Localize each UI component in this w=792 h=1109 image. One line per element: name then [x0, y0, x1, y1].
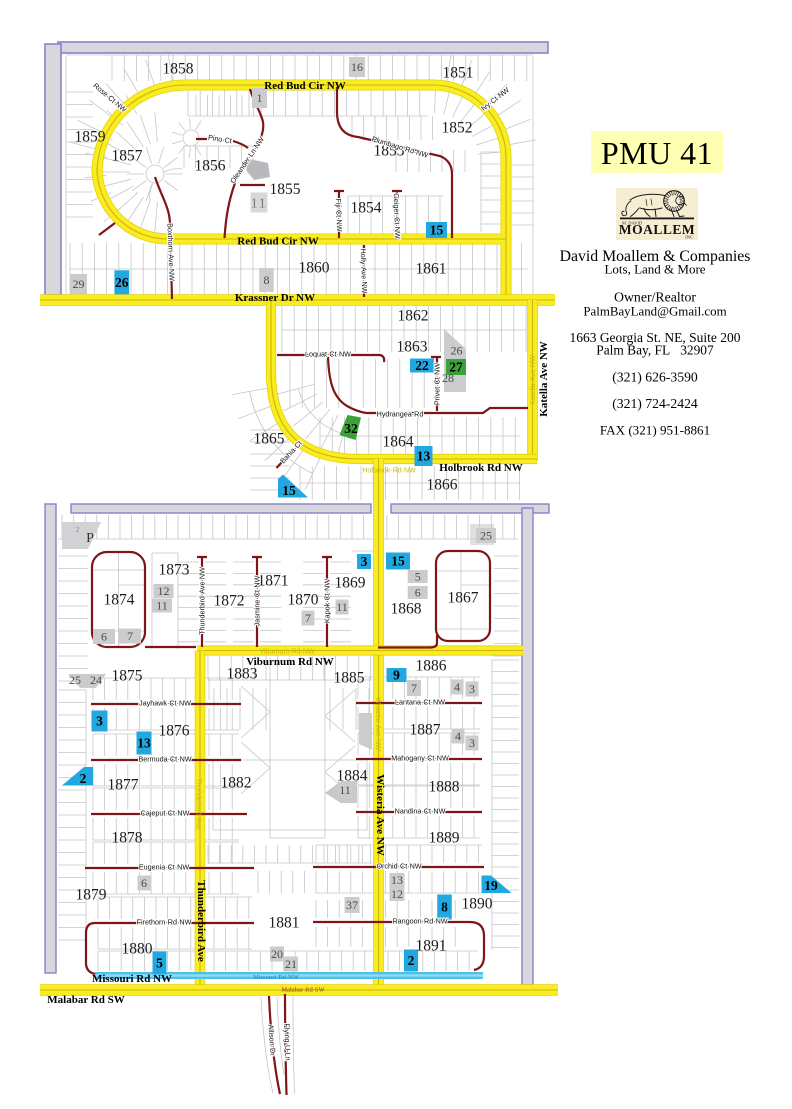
svg-text:PMU 41: PMU 41: [601, 135, 713, 171]
svg-text:Malabar Rd SW: Malabar Rd SW: [47, 994, 124, 1006]
svg-text:Red Bud Cir NW: Red Bud Cir NW: [264, 80, 345, 92]
svg-text:2: 2: [80, 771, 87, 786]
svg-text:Geiger·Ct·NW: Geiger·Ct·NW: [392, 193, 403, 239]
svg-text:1884: 1884: [337, 768, 368, 785]
svg-text:1879: 1879: [76, 887, 107, 904]
svg-text:2: 2: [76, 526, 80, 534]
svg-text:3: 3: [469, 736, 475, 750]
svg-text:5: 5: [415, 570, 421, 584]
svg-text:Nandina·Ct·NW: Nandina·Ct·NW: [395, 807, 446, 816]
svg-text:Kapok·Ct·NW: Kapok·Ct·NW: [323, 579, 332, 624]
svg-text:Holly·Ave·NW: Holly·Ave·NW: [359, 248, 370, 293]
svg-text:Jasmine·Ct·NW: Jasmine·Ct·NW: [253, 575, 262, 626]
svg-text:1872: 1872: [214, 593, 245, 610]
svg-text:16: 16: [351, 60, 363, 74]
svg-text:1882: 1882: [221, 775, 252, 792]
svg-text:9: 9: [393, 668, 400, 683]
svg-text:Holbrook·Rd·NW: Holbrook·Rd·NW: [362, 468, 416, 475]
svg-text:1864: 1864: [383, 434, 414, 451]
svg-text:Holbrook Rd NW: Holbrook Rd NW: [439, 462, 523, 474]
svg-text:1855: 1855: [270, 181, 301, 198]
svg-text:Jayhawk·Ct·NW: Jayhawk·Ct·NW: [139, 699, 191, 708]
svg-text:1: 1: [257, 91, 263, 105]
svg-text:15: 15: [430, 223, 444, 238]
svg-text:8: 8: [441, 900, 448, 915]
svg-text:Owner/Realtor: Owner/Realtor: [614, 290, 696, 305]
svg-text:1863: 1863: [397, 339, 428, 356]
svg-text:3: 3: [361, 554, 368, 569]
svg-text:1857: 1857: [112, 148, 143, 165]
svg-text:Bermuda·Ct·NW: Bermuda·Ct·NW: [138, 755, 191, 764]
svg-text:1887: 1887: [410, 722, 441, 739]
svg-text:Wisteria·Ave·NW: Wisteria·Ave·NW: [374, 697, 381, 751]
svg-text:28: 28: [442, 371, 454, 385]
svg-text:1851: 1851: [443, 65, 474, 82]
svg-text:1865: 1865: [254, 431, 285, 448]
svg-text:1885: 1885: [334, 670, 365, 687]
svg-text:20: 20: [271, 947, 283, 961]
svg-text:1889: 1889: [429, 830, 460, 847]
svg-text:(321) 626-3590: (321) 626-3590: [612, 370, 698, 386]
svg-text:1861: 1861: [416, 261, 447, 278]
svg-text:6: 6: [415, 586, 421, 600]
svg-text:1870: 1870: [288, 592, 319, 609]
svg-text:Viburnum Rd NW: Viburnum Rd NW: [246, 656, 334, 668]
svg-text:1866: 1866: [427, 477, 458, 494]
svg-text:Thunderbird·Ave: Thunderbird·Ave: [195, 778, 202, 830]
svg-text:Katella Ave NW: Katella Ave NW: [538, 341, 550, 417]
svg-text:1859: 1859: [75, 129, 106, 146]
svg-text:1867: 1867: [448, 590, 479, 607]
svg-text:Wisteria Ave NW: Wisteria Ave NW: [374, 774, 386, 855]
svg-text:1869: 1869: [335, 575, 366, 592]
svg-text:15: 15: [282, 483, 296, 498]
svg-text:Fiji·Ct·NW: Fiji·Ct·NW: [334, 198, 344, 232]
svg-text:Cajeput·Ct·NW: Cajeput·Ct·NW: [141, 809, 190, 818]
svg-text:8: 8: [264, 273, 270, 287]
svg-text:Thunderbird Ave: Thunderbird Ave: [195, 880, 207, 962]
svg-text:25: 25: [69, 673, 81, 687]
svg-text:1876: 1876: [159, 723, 190, 740]
svg-text:5: 5: [156, 956, 163, 971]
svg-text:Palm Bay, FL 32907: Palm Bay, FL 32907: [596, 343, 714, 358]
svg-text:Red Bud Cir NW: Red Bud Cir NW: [237, 236, 318, 248]
svg-text:1856: 1856: [195, 158, 226, 175]
svg-text:P: P: [86, 531, 94, 546]
svg-text:Viburnum·Rd·NW: Viburnum·Rd·NW: [259, 649, 314, 656]
svg-text:21: 21: [285, 957, 297, 971]
svg-text:1852: 1852: [442, 120, 473, 137]
svg-text:INC: INC: [685, 235, 693, 240]
svg-text:Privet·Ct·NW: Privet·Ct·NW: [433, 363, 442, 406]
svg-text:6: 6: [141, 876, 147, 890]
svg-text:1858: 1858: [163, 61, 194, 78]
svg-text:FAX (321) 951-8861: FAX (321) 951-8861: [600, 423, 710, 438]
svg-text:3: 3: [469, 682, 475, 696]
svg-text:25: 25: [480, 529, 492, 543]
svg-text:11: 11: [339, 783, 351, 797]
svg-text:1868: 1868: [391, 601, 422, 618]
svg-text:1875: 1875: [112, 668, 143, 685]
svg-text:Firethorn·Rd·NW: Firethorn·Rd·NW: [137, 918, 192, 927]
svg-text:3: 3: [96, 714, 103, 729]
svg-text:1881: 1881: [269, 915, 300, 932]
svg-text:Hydrangea·Rd: Hydrangea·Rd: [377, 410, 424, 419]
svg-text:6: 6: [101, 630, 107, 644]
svg-text:32: 32: [344, 421, 358, 436]
svg-text:13: 13: [391, 873, 403, 887]
svg-text:1883: 1883: [227, 666, 258, 683]
svg-text:Krassner Dr NW: Krassner Dr NW: [235, 292, 315, 304]
svg-text:24: 24: [90, 673, 102, 687]
svg-text:1888: 1888: [429, 779, 460, 796]
svg-text:11: 11: [336, 600, 348, 614]
svg-text:Loquat·Ct·NW: Loquat·Ct·NW: [305, 350, 351, 359]
svg-text:15: 15: [391, 554, 405, 569]
svg-text:Katella·Ave·NW: Katella·Ave·NW: [530, 355, 537, 405]
svg-text:1874: 1874: [104, 592, 135, 609]
svg-text:Thunderbird·Ave·NW: Thunderbird·Ave·NW: [198, 567, 207, 635]
svg-text:1873: 1873: [159, 562, 190, 579]
svg-text:Flying-U-Ln: Flying-U-Ln: [282, 1023, 292, 1060]
svg-text:37: 37: [346, 898, 358, 912]
svg-text:1890: 1890: [462, 896, 493, 913]
svg-text:1891: 1891: [416, 938, 447, 955]
svg-text:Rangoon·Rd·NW: Rangoon·Rd·NW: [392, 917, 447, 926]
svg-text:19: 19: [484, 878, 498, 893]
svg-text:Mahogany·Ct·NW: Mahogany·Ct·NW: [391, 754, 449, 763]
svg-text:7: 7: [305, 611, 311, 625]
svg-text:Lots, Land & More: Lots, Land & More: [604, 262, 705, 277]
svg-text:2: 2: [408, 953, 415, 968]
svg-text:22: 22: [415, 358, 429, 373]
svg-text:Missouri·Rd·NW: Missouri·Rd·NW: [253, 974, 300, 981]
svg-text:1862: 1862: [398, 308, 429, 325]
svg-text:11: 11: [156, 599, 168, 613]
svg-text:MOALLEM: MOALLEM: [619, 222, 695, 237]
svg-text:11: 11: [251, 197, 267, 212]
svg-text:12: 12: [391, 887, 403, 901]
svg-text:29: 29: [73, 277, 85, 291]
svg-text:Eugenia·Ct·NW: Eugenia·Ct·NW: [139, 863, 190, 872]
svg-text:PalmBayLand@Gmail.com: PalmBayLand@Gmail.com: [583, 305, 726, 319]
svg-text:7: 7: [127, 629, 133, 643]
svg-text:1886: 1886: [416, 658, 447, 675]
svg-text:13: 13: [137, 736, 151, 751]
svg-text:1878: 1878: [112, 830, 143, 847]
svg-text:1880: 1880: [122, 941, 153, 958]
svg-text:Malabar·Rd·SW: Malabar·Rd·SW: [281, 987, 325, 994]
svg-text:12: 12: [158, 584, 170, 598]
svg-text:4: 4: [455, 729, 461, 743]
svg-text:1854: 1854: [351, 200, 382, 217]
svg-text:26: 26: [115, 275, 129, 290]
svg-text:Orchid·Ct·NW: Orchid·Ct·NW: [376, 862, 421, 871]
svg-text:1877: 1877: [108, 777, 139, 794]
svg-text:(321) 724-2424: (321) 724-2424: [612, 396, 698, 412]
svg-text:Lantana·Ct·NW: Lantana·Ct·NW: [395, 698, 445, 707]
svg-text:13: 13: [417, 449, 431, 464]
svg-text:1860: 1860: [299, 260, 330, 277]
svg-text:1871: 1871: [258, 573, 289, 590]
svg-text:7: 7: [411, 681, 417, 695]
svg-text:4: 4: [454, 680, 460, 694]
svg-text:Missouri Rd NW: Missouri Rd NW: [92, 973, 172, 985]
svg-text:26: 26: [451, 344, 463, 358]
